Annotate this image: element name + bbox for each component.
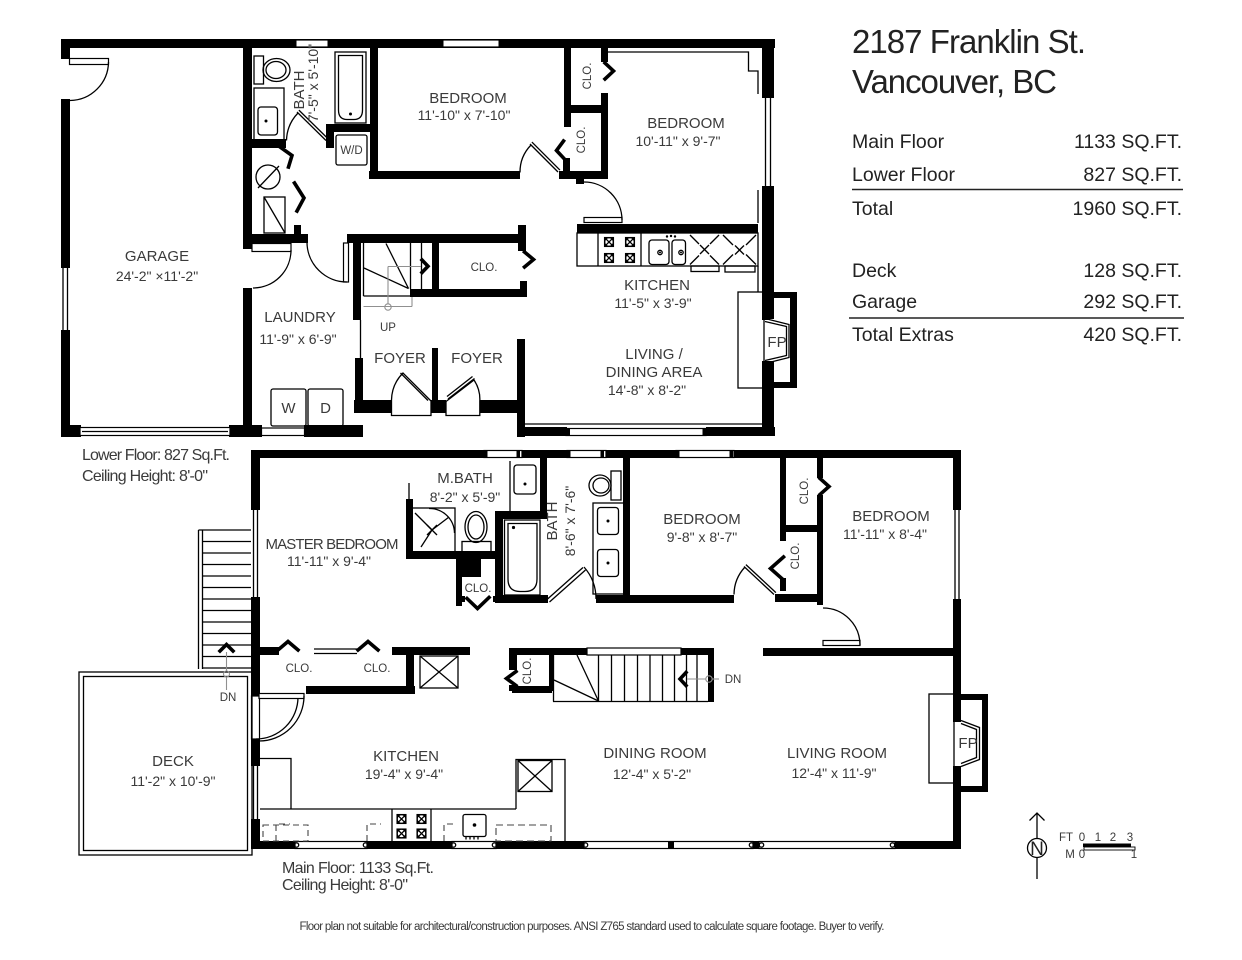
svg-text:Lower Floor: 827 Sq.Ft.: Lower Floor: 827 Sq.Ft.	[82, 447, 230, 464]
svg-text:CLO.: CLO.	[576, 127, 588, 154]
svg-text:Ceiling Height: 8'-0": Ceiling Height: 8'-0"	[82, 468, 208, 485]
svg-text:LIVING /: LIVING /	[625, 346, 683, 363]
svg-text:11'-11" x 9'-4": 11'-11" x 9'-4"	[287, 553, 371, 569]
svg-text:Vancouver, BC: Vancouver, BC	[852, 63, 1057, 100]
svg-text:Total: Total	[852, 198, 893, 220]
svg-text:MASTER BEDROOM: MASTER BEDROOM	[266, 536, 399, 553]
svg-text:7'-5" x 5'-10": 7'-5" x 5'-10"	[305, 44, 321, 122]
svg-text:0: 0	[1079, 832, 1085, 844]
svg-text:19'-4" x 9'-4": 19'-4" x 9'-4"	[365, 766, 443, 782]
svg-text:N: N	[1030, 839, 1044, 860]
svg-text:W/D: W/D	[340, 145, 362, 157]
svg-text:DN: DN	[220, 692, 237, 704]
svg-text:827 SQ.FT.: 827 SQ.FT.	[1083, 164, 1182, 186]
svg-text:BEDROOM: BEDROOM	[647, 115, 725, 132]
svg-text:M.BATH: M.BATH	[437, 470, 493, 487]
svg-text:LIVING ROOM: LIVING ROOM	[787, 745, 887, 762]
svg-text:11'-2" x 10'-9": 11'-2" x 10'-9"	[130, 773, 215, 789]
svg-text:BEDROOM: BEDROOM	[852, 508, 930, 525]
svg-text:DINING AREA: DINING AREA	[606, 364, 703, 381]
svg-text:CLO.: CLO.	[522, 658, 534, 685]
svg-text:D: D	[320, 400, 331, 417]
svg-text:FOYER: FOYER	[451, 350, 503, 367]
svg-text:Floor plan not suitable for ar: Floor plan not suitable for architectura…	[300, 921, 885, 933]
svg-text:1: 1	[1131, 849, 1137, 861]
svg-text:11'-11" x 8'-4": 11'-11" x 8'-4"	[843, 526, 927, 542]
svg-text:Ceiling Height: 8'-0": Ceiling Height: 8'-0"	[282, 877, 408, 894]
svg-text:BEDROOM: BEDROOM	[429, 90, 507, 107]
svg-text:KITCHEN: KITCHEN	[373, 748, 439, 765]
svg-text:0: 0	[1079, 849, 1085, 861]
svg-text:8'-2" x 5'-9": 8'-2" x 5'-9"	[430, 489, 501, 505]
svg-text:CLO.: CLO.	[471, 262, 498, 274]
svg-text:9'-8" x 8'-7": 9'-8" x 8'-7"	[667, 529, 738, 545]
svg-text:12'-4" x 5'-2": 12'-4" x 5'-2"	[613, 766, 691, 782]
svg-text:Total Extras: Total Extras	[852, 324, 954, 346]
svg-text:DINING ROOM: DINING ROOM	[603, 745, 706, 762]
svg-text:11'-10" x 7'-10": 11'-10" x 7'-10"	[418, 107, 511, 123]
svg-text:CLO.: CLO.	[364, 663, 391, 675]
svg-text:1: 1	[1095, 832, 1101, 844]
svg-text:FP: FP	[767, 334, 786, 351]
svg-text:CLO.: CLO.	[582, 63, 594, 90]
svg-text:8'-6" x 7'-6": 8'-6" x 7'-6"	[562, 486, 578, 557]
svg-text:Main Floor: 1133 Sq.Ft.: Main Floor: 1133 Sq.Ft.	[282, 860, 434, 877]
svg-text:LAUNDRY: LAUNDRY	[264, 309, 335, 326]
svg-text:3: 3	[1127, 832, 1133, 844]
svg-text:12'-4" x 11'-9": 12'-4" x 11'-9"	[791, 765, 876, 781]
svg-text:11'-5" x 3'-9": 11'-5" x 3'-9"	[614, 295, 691, 311]
svg-text:CLO.: CLO.	[799, 478, 811, 505]
svg-text:14'-8" x 8'-2": 14'-8" x 8'-2"	[608, 382, 686, 398]
svg-text:UP: UP	[380, 322, 396, 334]
svg-text:292 SQ.FT.: 292 SQ.FT.	[1083, 291, 1182, 313]
svg-text:1133 SQ.FT.: 1133 SQ.FT.	[1074, 131, 1182, 153]
svg-text:GARAGE: GARAGE	[125, 248, 189, 265]
svg-text:CLO.: CLO.	[286, 663, 313, 675]
svg-text:11'-9" x 6'-9": 11'-9" x 6'-9"	[259, 331, 336, 347]
svg-text:CLO.: CLO.	[790, 543, 802, 570]
svg-text:Deck: Deck	[852, 260, 897, 282]
svg-text:10'-11" x 9'-7": 10'-11" x 9'-7"	[635, 133, 720, 149]
svg-text:2187 Franklin St.: 2187 Franklin St.	[852, 23, 1086, 60]
svg-text:2: 2	[1110, 832, 1116, 844]
svg-text:KITCHEN: KITCHEN	[624, 277, 690, 294]
svg-text:M: M	[1065, 849, 1075, 861]
svg-text:BEDROOM: BEDROOM	[663, 511, 741, 528]
svg-text:BATH: BATH	[544, 502, 561, 541]
svg-text:W: W	[281, 400, 296, 417]
svg-text:FOYER: FOYER	[374, 350, 426, 367]
svg-text:1960 SQ.FT.: 1960 SQ.FT.	[1073, 198, 1182, 220]
svg-text:DN: DN	[725, 674, 742, 686]
svg-text:Main Floor: Main Floor	[852, 131, 945, 153]
svg-text:CLO.: CLO.	[465, 583, 492, 595]
svg-text:DECK: DECK	[152, 753, 194, 770]
svg-text:128 SQ.FT.: 128 SQ.FT.	[1083, 260, 1182, 282]
svg-text:FT: FT	[1059, 832, 1073, 844]
svg-text:Lower Floor: Lower Floor	[852, 164, 955, 186]
svg-text:FP: FP	[958, 735, 977, 752]
svg-text:Garage: Garage	[852, 291, 917, 313]
svg-text:24'-2" ×11'-2": 24'-2" ×11'-2"	[116, 268, 198, 284]
svg-text:420 SQ.FT.: 420 SQ.FT.	[1083, 324, 1182, 346]
